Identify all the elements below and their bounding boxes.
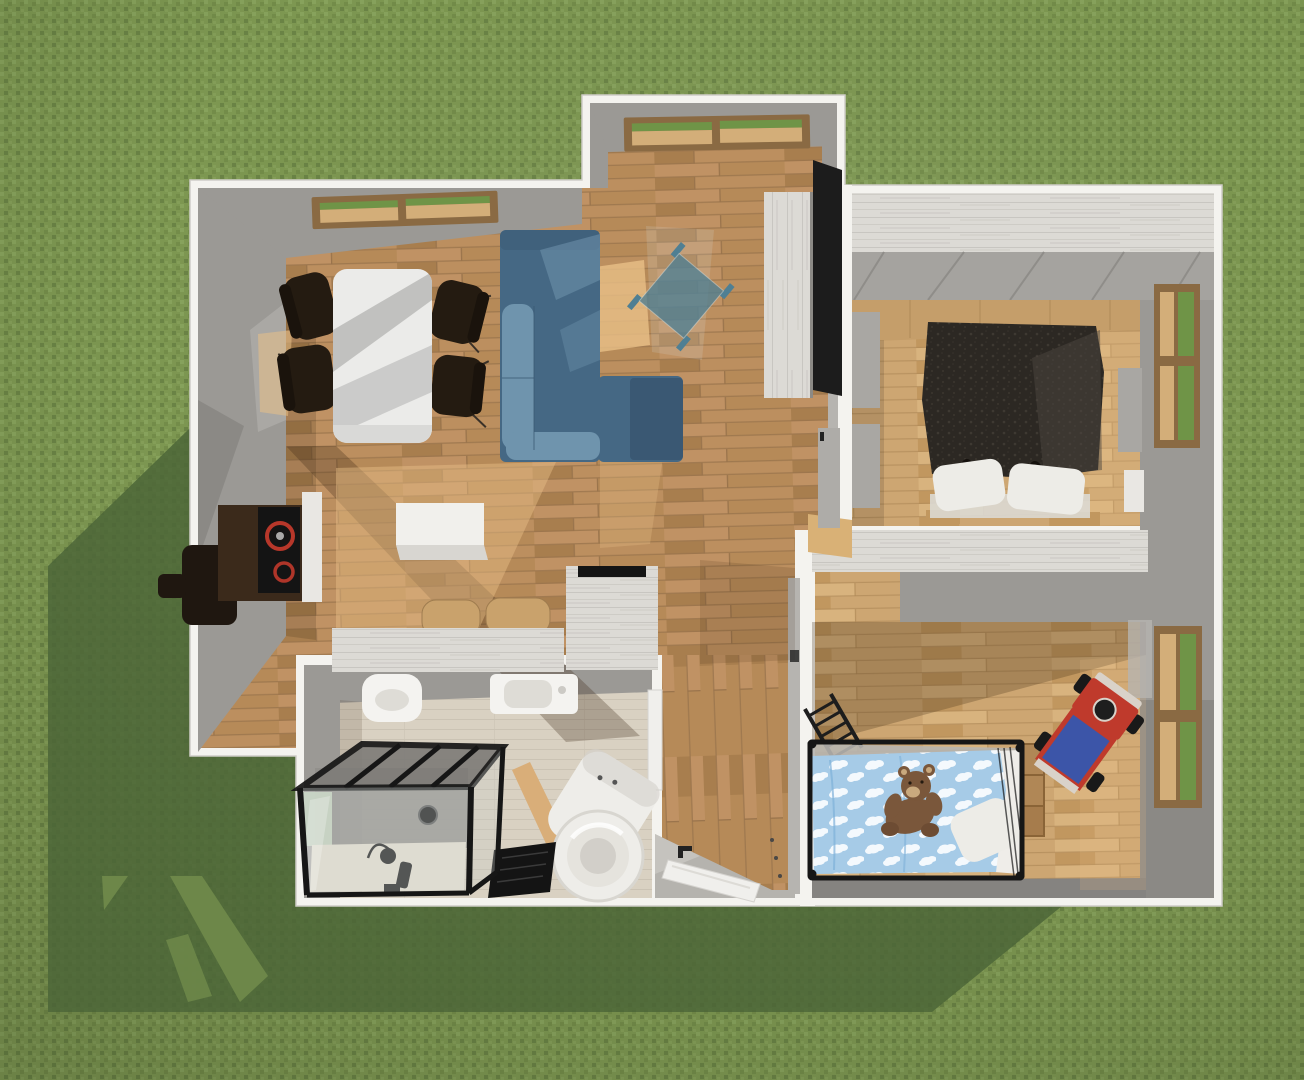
pillow [1006,462,1086,516]
bedroom-nursery-wall-face [900,572,1148,622]
toilet[interactable] [362,674,422,722]
tv-panel[interactable] [813,160,842,396]
nightstand[interactable] [1124,470,1144,512]
burner-highlight [276,532,284,540]
dining-table[interactable] [333,269,432,443]
door-handle [820,432,824,441]
bay-window[interactable] [624,114,811,151]
kitchen-counter-run[interactable] [332,628,564,672]
walk-in-shower[interactable] [300,744,503,895]
floorplan-render [0,0,1304,1080]
double-bed[interactable] [922,322,1104,526]
sideboard-edge [810,192,813,398]
hob-counter[interactable] [566,566,658,670]
bedroom-roof-band [852,193,1214,252]
bathroom-door[interactable] [648,690,662,790]
bedroom-nursery-wall-band [812,530,1148,572]
bedroom-door[interactable] [818,428,840,528]
hob-strip [578,566,646,577]
wardrobe-panel[interactable] [852,312,880,408]
washbasin[interactable] [490,674,578,714]
tv-sideboard[interactable] [764,192,813,398]
kitchen-island[interactable] [396,503,488,560]
roof-window-living[interactable] [311,191,498,229]
floor-shadow-band [700,560,795,664]
scene-canvas [0,0,1304,1080]
window-jamb-panel [1128,620,1152,698]
kitchen-counter-cooktop[interactable] [218,492,322,602]
bedroom-window[interactable] [1154,284,1200,448]
counter-end-face [302,492,322,602]
cot[interactable] [808,740,1025,881]
wardrobe-panel[interactable] [852,424,880,508]
pillow [931,457,1007,512]
nursery-door-handle[interactable] [790,650,799,662]
wardrobe-panel[interactable] [1118,368,1142,452]
